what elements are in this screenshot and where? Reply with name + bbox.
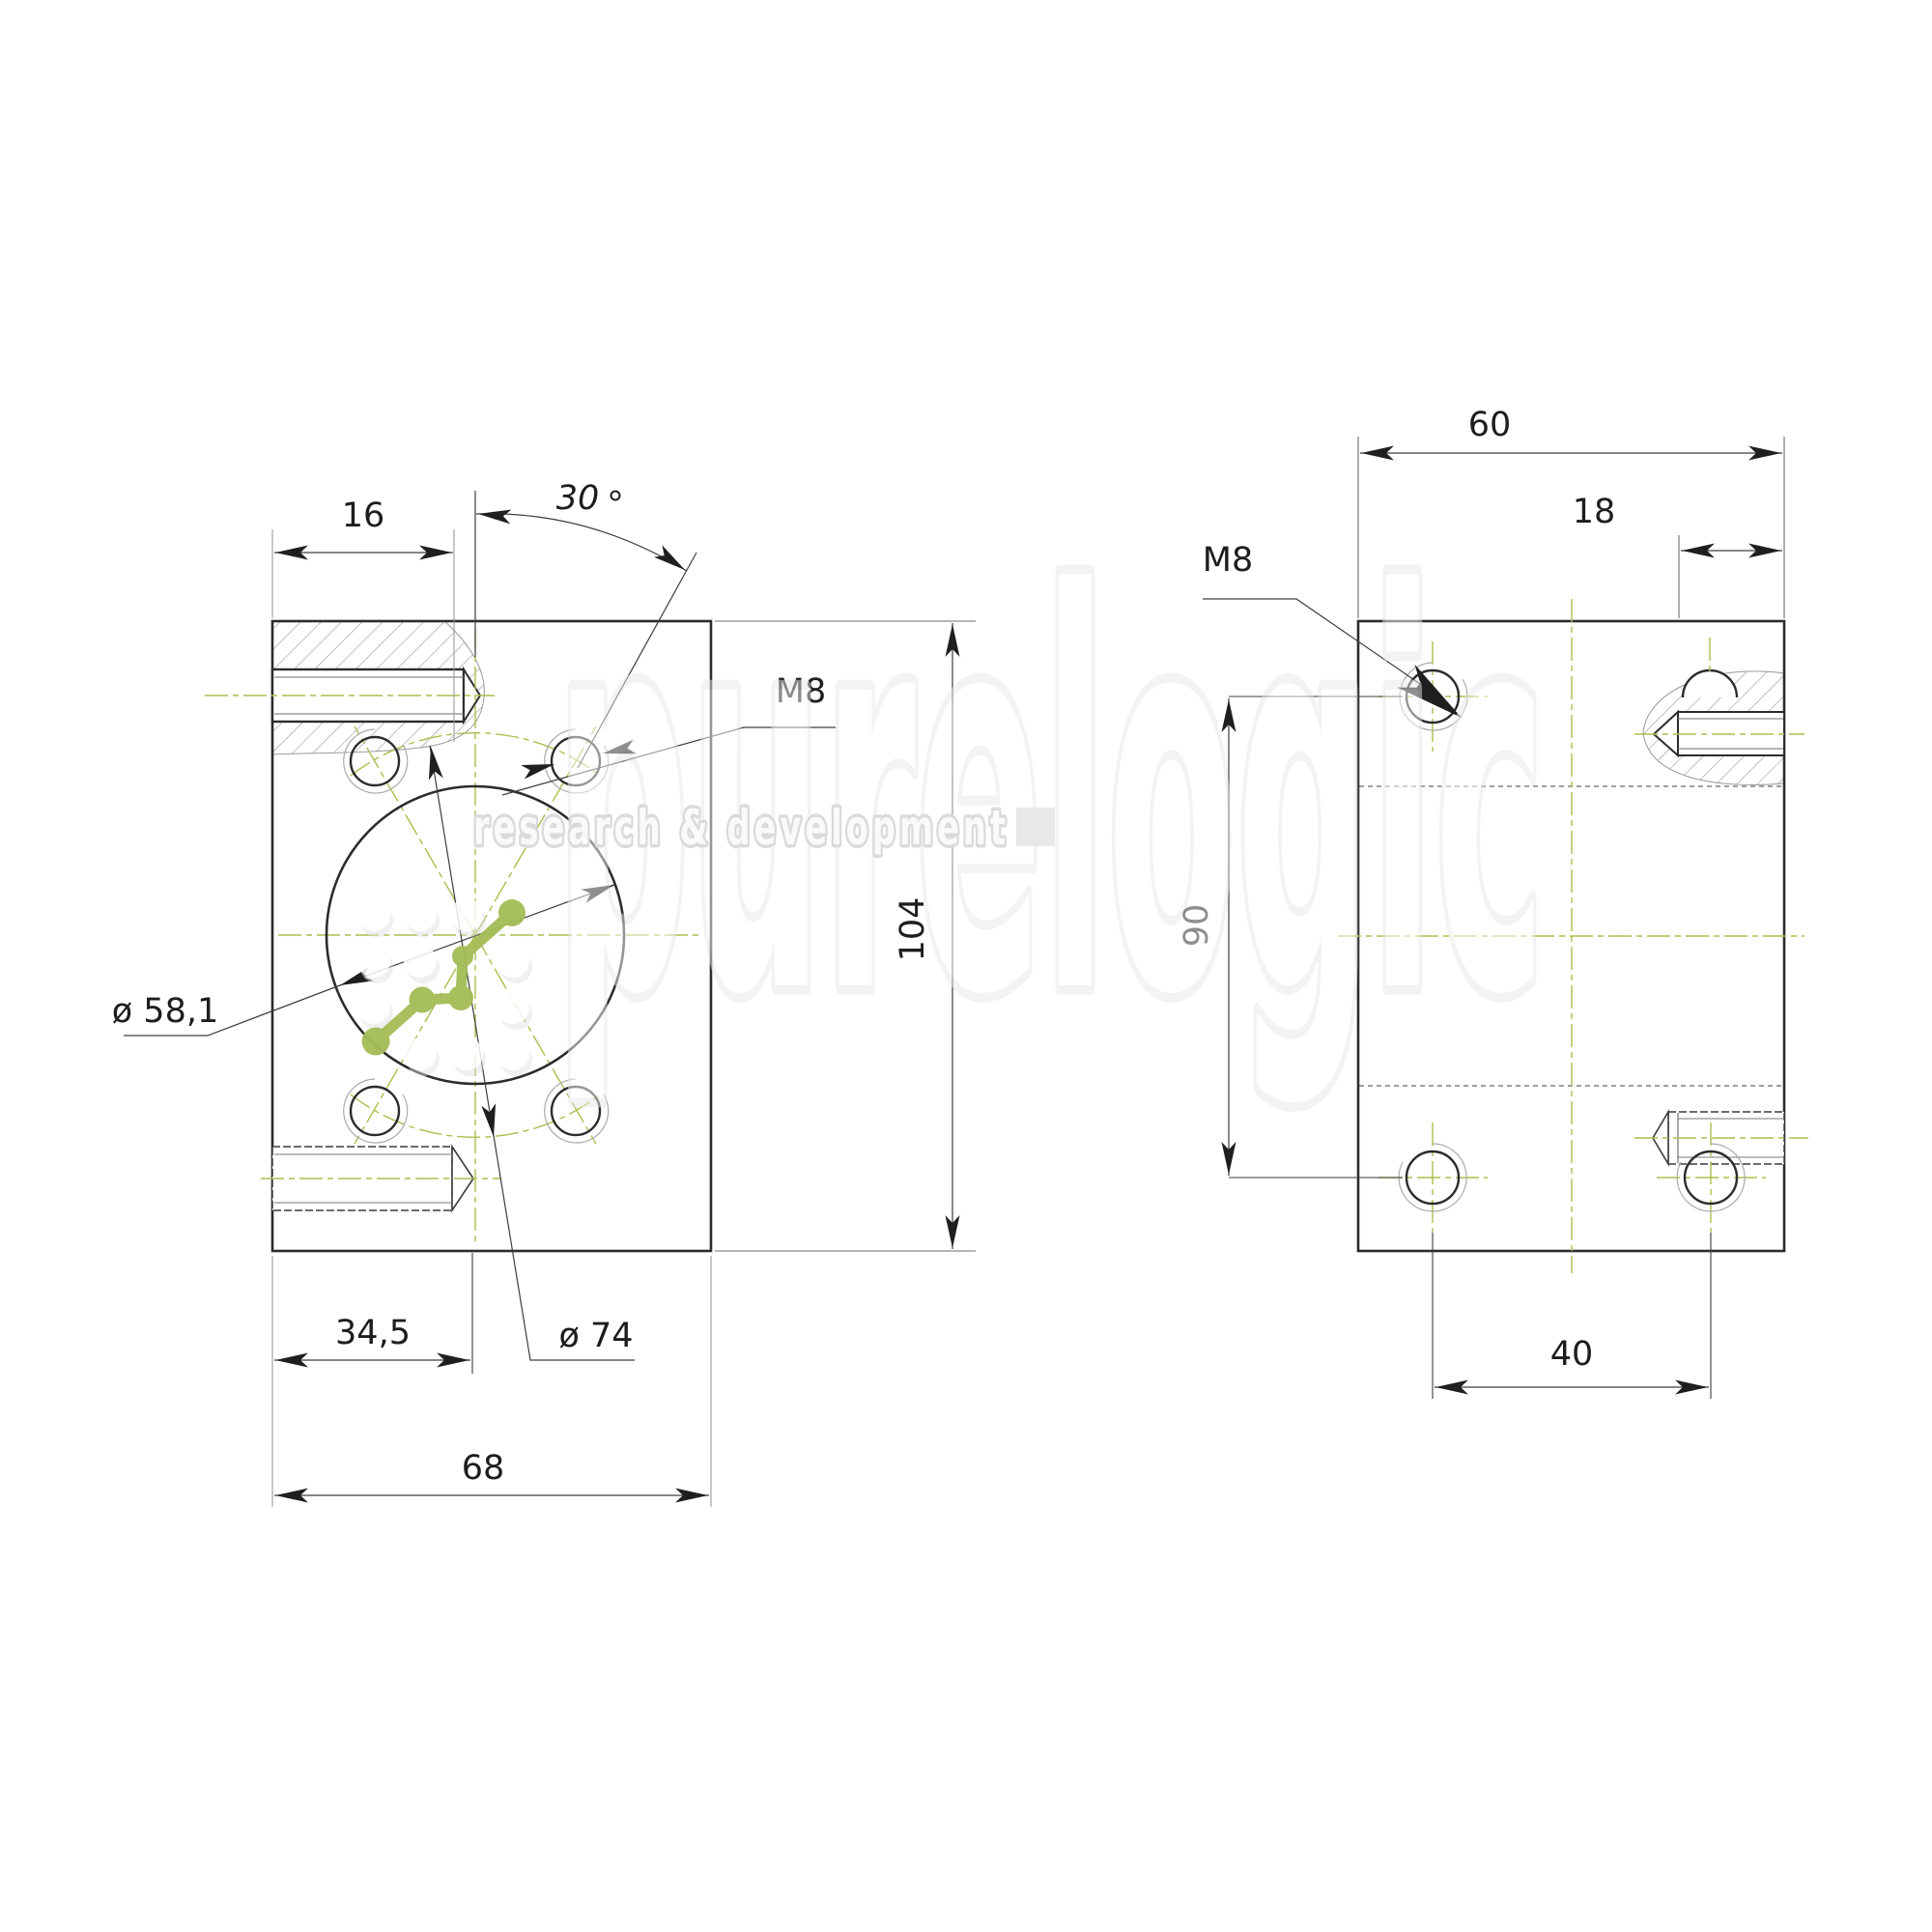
cad-drawing: 16 30 M8 ø 58,1	[0, 0, 1932, 1932]
dim-16-label: 16	[342, 497, 385, 535]
dim-34-5: 34,5	[272, 1253, 472, 1507]
watermark-brand-text: purelogic	[555, 484, 1546, 1114]
dim-34-5-label: 34,5	[335, 1314, 411, 1352]
dim-68-label: 68	[462, 1449, 505, 1488]
drawing-canvas: 16 30 M8 ø 58,1	[0, 0, 1932, 1932]
tagline-end-square-icon	[1016, 808, 1055, 846]
dim-58-1-label: ø 58,1	[112, 992, 218, 1031]
watermark-tagline-text: research & development	[473, 800, 1009, 856]
dim-68: 68	[274, 1256, 711, 1507]
dim-60-label: 60	[1468, 406, 1512, 444]
dim-18: 18	[1573, 493, 1782, 618]
dim-74-label: ø 74	[558, 1317, 633, 1355]
dim-18-label: 18	[1573, 493, 1616, 531]
dim-40-label: 40	[1550, 1335, 1594, 1374]
